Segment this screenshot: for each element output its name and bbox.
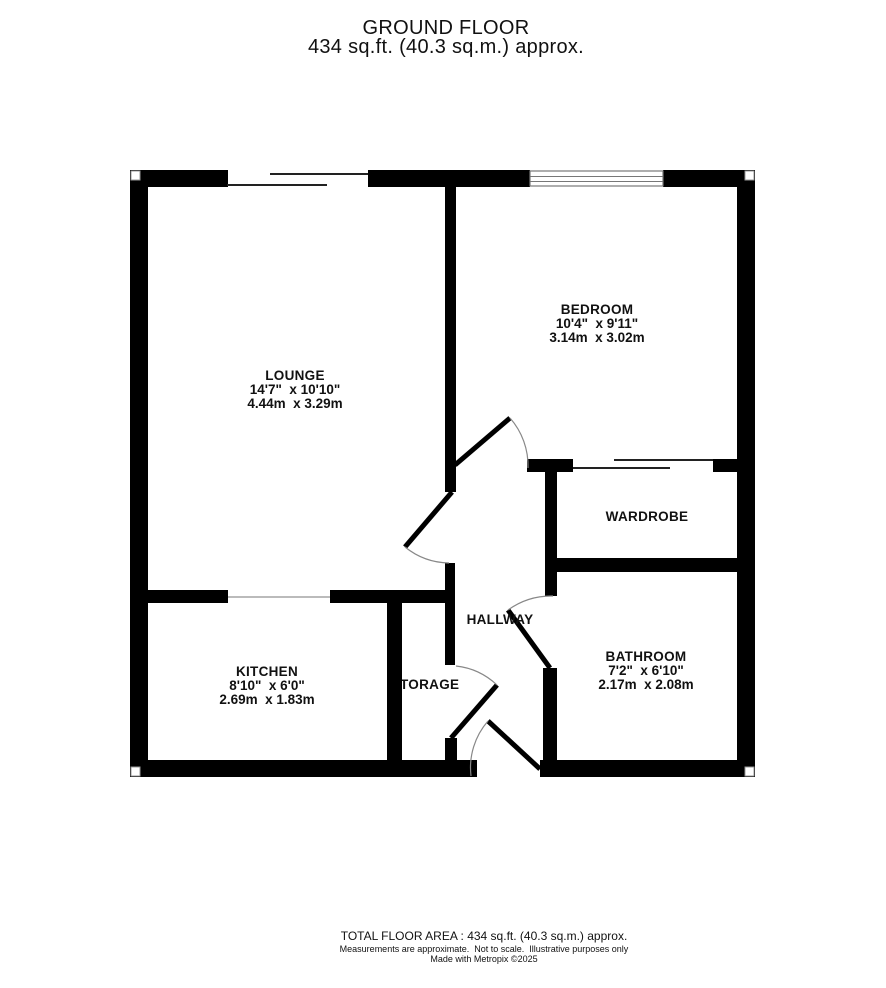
- room-name: HALLWAY: [467, 612, 534, 627]
- wall-bathroom-left-lower: [543, 668, 557, 760]
- total-floor-area-text: TOTAL FLOOR AREA : 434 sq.ft. (40.3 sq.m…: [341, 929, 628, 943]
- wall-lounge-bedroom-divider: [445, 187, 456, 492]
- room-dimensions-imperial: 8'10" x 6'0": [229, 678, 305, 693]
- room-dimensions-metric: 3.14m x 3.02m: [549, 330, 644, 345]
- wall-bathroom-left-upper: [545, 572, 557, 596]
- wall-kitchen-top-a: [148, 590, 228, 603]
- door-swing-arc: [456, 666, 497, 685]
- plan-footer: TOTAL FLOOR AREA : 434 sq.ft. (40.3 sq.m…: [340, 929, 629, 964]
- room-label-hallway: HALLWAY: [467, 612, 534, 627]
- wall-wardrobe-top-left: [527, 459, 573, 472]
- corner-notch: [745, 171, 754, 180]
- bathroom-door: [508, 596, 553, 668]
- wall-wardrobe-top-right: [713, 459, 737, 472]
- wall-top-b: [368, 170, 530, 187]
- wall-wardrobe-left: [545, 472, 557, 572]
- corner-notch: [131, 767, 140, 776]
- room-label-kitchen: KITCHEN 8'10" x 6'0" 2.69m x 1.83m: [219, 664, 314, 707]
- room-name: LOUNGE: [265, 368, 325, 383]
- room-dimensions-imperial: 14'7" x 10'10": [250, 382, 341, 397]
- corner-notch: [131, 171, 140, 180]
- wall-storage-hinge-stub: [445, 738, 457, 760]
- disclaimer-text: Measurements are approximate. Not to sca…: [340, 944, 629, 954]
- door-leaf: [405, 492, 452, 547]
- wall-bottom-a: [130, 760, 477, 777]
- door-leaf: [455, 418, 510, 465]
- room-label-wardrobe: WARDROBE: [606, 509, 689, 524]
- room-name: BATHROOM: [606, 649, 687, 664]
- room-label-bedroom: BEDROOM 10'4" x 9'11" 3.14m x 3.02m: [549, 302, 644, 345]
- plan-header: GROUND FLOOR 434 sq.ft. (40.3 sq.m.) app…: [308, 17, 584, 58]
- room-name: BEDROOM: [561, 302, 634, 317]
- bedroom-door: [455, 418, 528, 468]
- door-leaf: [451, 685, 497, 738]
- wall-top-a: [130, 170, 228, 187]
- floor-plan-canvas: GROUND FLOOR 434 sq.ft. (40.3 sq.m.) app…: [0, 0, 886, 988]
- wardrobe-sliding-doors: [573, 460, 713, 468]
- room-dimensions-metric: 2.69m x 1.83m: [219, 692, 314, 707]
- room-dimensions-imperial: 7'2" x 6'10": [608, 663, 684, 678]
- room-label-lounge: LOUNGE 14'7" x 10'10" 4.44m x 3.29m: [247, 368, 342, 411]
- wall-storage-right: [445, 563, 455, 665]
- sliding-door-symbol: [227, 174, 368, 185]
- door-swing-arc: [405, 547, 449, 563]
- room-dimensions-metric: 4.44m x 3.29m: [247, 396, 342, 411]
- room-name: WARDROBE: [606, 509, 689, 524]
- wall-kitchen-top-b: [330, 590, 445, 603]
- room-dimensions-metric: 2.17m x 2.08m: [598, 677, 693, 692]
- wall-bottom-b: [540, 760, 755, 777]
- window-symbol: [530, 171, 663, 186]
- credit-text: Made with Metropix ©2025: [430, 954, 537, 964]
- wall-outer-left: [130, 170, 148, 777]
- door-leaf: [488, 721, 540, 769]
- entrance-door: [471, 721, 540, 776]
- wall-wardrobe-bottom: [545, 558, 737, 572]
- room-label-bathroom: BATHROOM 7'2" x 6'10" 2.17m x 2.08m: [598, 649, 693, 692]
- wall-kitchen-storage-divider: [387, 603, 402, 760]
- door-swing-arc: [508, 596, 553, 610]
- window-frame: [530, 171, 663, 186]
- room-dimensions-imperial: 10'4" x 9'11": [556, 316, 638, 331]
- door-swing-arc: [510, 418, 528, 468]
- corner-notch: [745, 767, 754, 776]
- lounge-door: [405, 492, 452, 563]
- room-name: KITCHEN: [236, 664, 298, 679]
- floor-area-subtitle: 434 sq.ft. (40.3 sq.m.) approx.: [308, 36, 584, 58]
- wall-outer-right: [737, 170, 755, 777]
